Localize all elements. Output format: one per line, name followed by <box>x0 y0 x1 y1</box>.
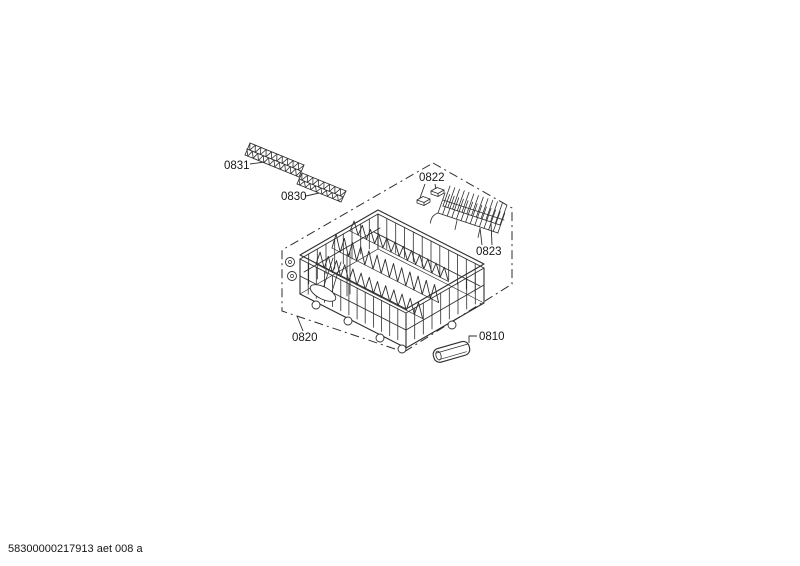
parts-diagram: 0831 0830 0822 0823 0820 0810 5830000021… <box>0 0 800 566</box>
clips-0822-drawing <box>417 188 444 206</box>
part-label-0830: 0830 <box>281 191 307 203</box>
part-label-0831: 0831 <box>224 160 250 172</box>
part-label-0820: 0820 <box>292 332 318 344</box>
basket-wheel <box>312 301 320 309</box>
part-label-0810: 0810 <box>479 331 505 343</box>
basket-roller <box>288 272 297 281</box>
basket-wheel <box>398 345 406 353</box>
handle-0810-drawing <box>432 340 471 364</box>
basket-wheel <box>344 317 352 325</box>
part-label-0823: 0823 <box>476 246 502 258</box>
basket-roller <box>286 258 295 267</box>
rack-insert-0831-drawing <box>245 143 304 177</box>
leader-lines <box>250 162 492 343</box>
basket-bearing-strip <box>308 281 338 304</box>
document-code: 58300000217913 aet 008 a <box>8 543 143 555</box>
basket-wheel <box>376 334 384 342</box>
parts-diagram-page: 0831 0830 0822 0823 0820 0810 5830000021… <box>0 0 800 566</box>
part-label-0822: 0822 <box>419 172 445 184</box>
basket-wheel <box>448 321 456 329</box>
